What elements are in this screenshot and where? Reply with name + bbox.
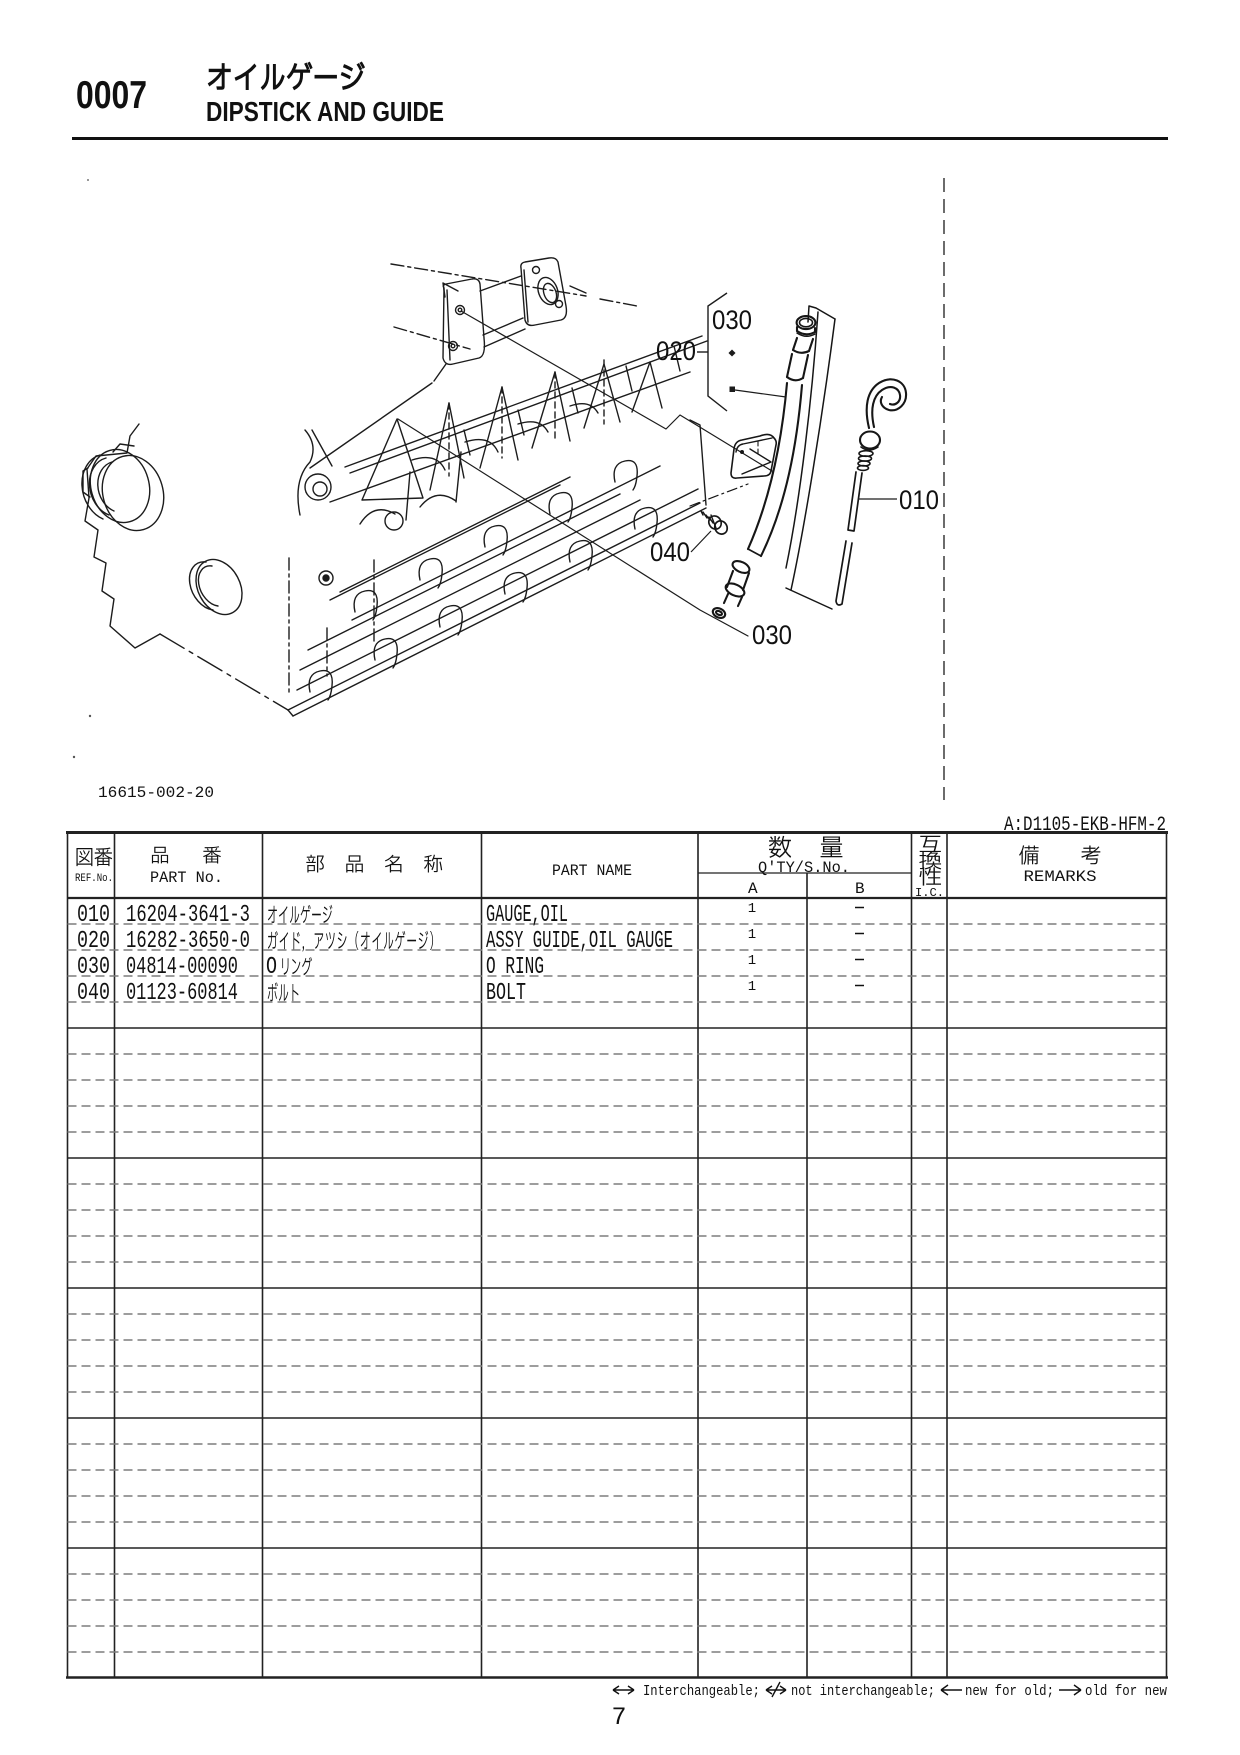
svg-text:1: 1 [748,953,756,969]
svg-text:I.C.: I.C. [915,886,944,900]
svg-text:REF.No.: REF.No. [75,873,113,885]
svg-text:BOLT: BOLT [486,980,526,1007]
svg-text:DIPSTICK AND GUIDE: DIPSTICK AND GUIDE [206,96,444,127]
svg-text:7: 7 [611,1703,626,1732]
svg-text:A: A [748,880,758,898]
svg-text:04814-00090: 04814-00090 [126,954,238,981]
svg-text:ASSY GUIDE,OIL GAUGE: ASSY GUIDE,OIL GAUGE [486,928,673,955]
svg-text:040: 040 [77,980,110,1007]
svg-text:020: 020 [656,336,696,366]
svg-text:0007: 0007 [76,74,147,117]
svg-text:1: 1 [748,901,756,917]
svg-text:O: O [266,954,277,981]
svg-text:REMARKS: REMARKS [1024,868,1097,886]
svg-text:030: 030 [712,305,752,335]
svg-text:new for old;: new for old; [965,1684,1054,1700]
svg-text:010: 010 [77,902,110,929]
svg-text:GAUGE,OIL: GAUGE,OIL [486,902,568,929]
svg-text:PART No.: PART No. [150,869,223,887]
svg-text:16615-002-20: 16615-002-20 [98,784,214,802]
svg-text:040: 040 [650,537,690,567]
svg-text:1: 1 [748,979,756,995]
svg-text:O RING: O RING [486,954,544,981]
svg-text:010: 010 [899,485,939,515]
svg-text:1: 1 [748,927,756,943]
svg-text:030: 030 [77,954,110,981]
svg-text:020: 020 [77,928,110,955]
svg-text:Q'TY/S.No.: Q'TY/S.No. [758,859,850,877]
svg-text:16282-3650-0: 16282-3650-0 [126,928,250,955]
svg-text:old for new: old for new [1085,1684,1167,1700]
svg-text:B: B [855,880,865,898]
svg-text:01123-60814: 01123-60814 [126,980,238,1007]
svg-text:030: 030 [752,620,792,650]
svg-text:PART NAME: PART NAME [552,862,632,880]
svg-text:Interchangeable;: Interchangeable; [643,1684,760,1700]
svg-text:not interchangeable;: not interchangeable; [791,1684,935,1700]
svg-text:16204-3641-3: 16204-3641-3 [126,902,250,929]
